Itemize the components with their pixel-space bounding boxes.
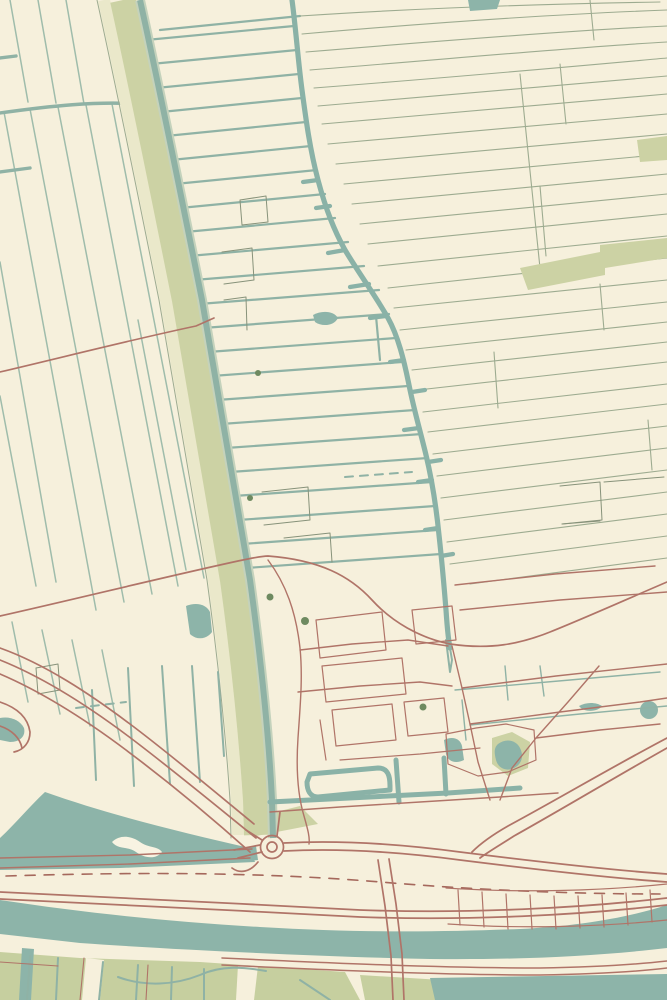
map-artwork — [0, 0, 667, 1000]
map-canvas — [0, 0, 667, 1000]
